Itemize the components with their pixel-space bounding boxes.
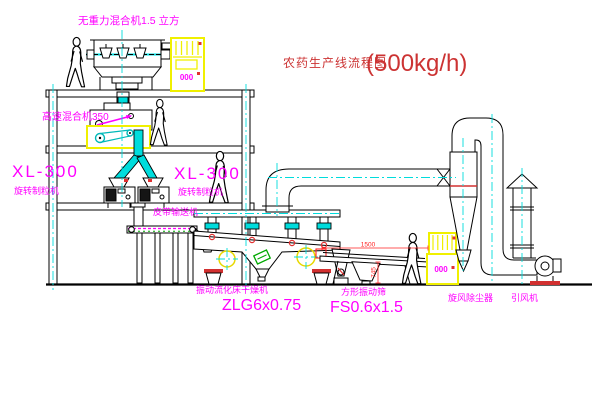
cabinet-2-display: 000 [434,265,448,274]
granulator-right-name-label: 旋转制粒机 [178,186,223,197]
screen-model-label: FS0.6x1.5 [330,299,403,316]
indicator-light-icon [197,72,200,75]
cad-drawing-page: 000 [0,0,600,403]
belt-conveyor-label: 皮带输送机 [153,206,198,217]
fan-label: 引风机 [511,292,538,303]
high-speed-mixer-label: 高速混合机350 [42,110,109,123]
dryer-foot [204,269,223,284]
control-cabinet-2: 000 [427,233,458,284]
indicator-light-icon [199,42,202,45]
screen-name-label: 方形振动筛 [341,286,386,297]
cabinet-1-display: 000 [180,73,194,82]
exhaust-duct [262,169,450,212]
dryer-model-label: ZLG6x0.75 [222,297,301,314]
person-figure [150,99,167,145]
granulator-left-name-label: 旋转制粒机 [14,185,59,196]
gravity-mixer-label: 无重力混合机1.5 立方 [78,14,180,27]
person-figure [66,37,84,86]
dryer-name-label: 振动流化床干燥机 [196,284,268,295]
svg-text:745: 745 [371,267,378,278]
granulator-left-model-label: XL-300 [12,162,79,181]
fluid-bed-dryer-drawing [194,210,350,284]
indicator-light-icon [452,266,455,269]
svg-text:1500: 1500 [361,242,376,249]
granulator-left-drawing [104,178,135,208]
granulator-right-model-label: XL-300 [174,164,241,183]
control-cabinet-1: 000 [171,38,204,91]
dryer-foot [312,269,331,284]
cad-drawing-canvas: 000 [0,0,600,403]
cyclone-label: 旋风除尘器 [448,292,493,303]
fan-base [530,281,560,285]
indicator-light-icon [453,237,456,240]
diagram-title-capacity: (500kg/h) [366,50,467,77]
